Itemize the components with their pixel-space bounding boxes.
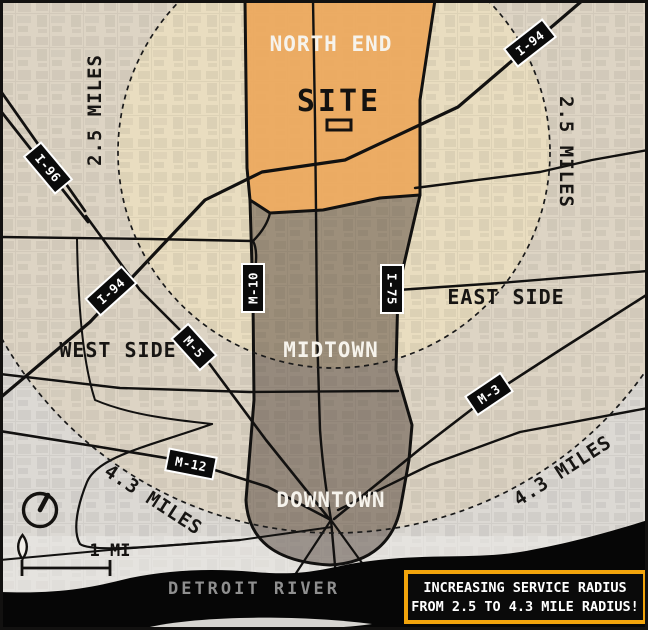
scale-label: 1 MI xyxy=(90,541,131,561)
label-2-5-miles-left: 2.5 MILES xyxy=(84,54,106,166)
site-label: SITE xyxy=(297,84,381,119)
label-east-side: EAST SIDE xyxy=(447,285,564,309)
svg-text:I-75: I-75 xyxy=(385,273,400,305)
svg-text:M-10: M-10 xyxy=(246,272,261,304)
callout-line1: INCREASING SERVICE RADIUS xyxy=(423,580,626,596)
service-radius-callout: INCREASING SERVICE RADIUS FROM 2.5 TO 4.… xyxy=(406,572,645,622)
detroit-radius-map: DETROIT RIVER NORTH END EAST SIDE WEST S… xyxy=(0,0,648,630)
river-label: DETROIT RIVER xyxy=(168,579,340,599)
north-pin-icon xyxy=(18,535,27,559)
badge-m10: M-10 xyxy=(242,264,264,312)
label-downtown: DOWNTOWN xyxy=(276,488,385,512)
badge-i75: I-75 xyxy=(381,265,403,313)
label-west-side: WEST SIDE xyxy=(59,338,176,362)
label-north-end: NORTH END xyxy=(270,32,393,56)
map-canvas: DETROIT RIVER NORTH END EAST SIDE WEST S… xyxy=(0,0,648,630)
label-midtown: MIDTOWN xyxy=(283,338,379,362)
label-2-5-miles-right: 2.5 MILES xyxy=(555,96,577,208)
callout-line2: FROM 2.5 TO 4.3 MILE RADIUS! xyxy=(411,599,639,615)
